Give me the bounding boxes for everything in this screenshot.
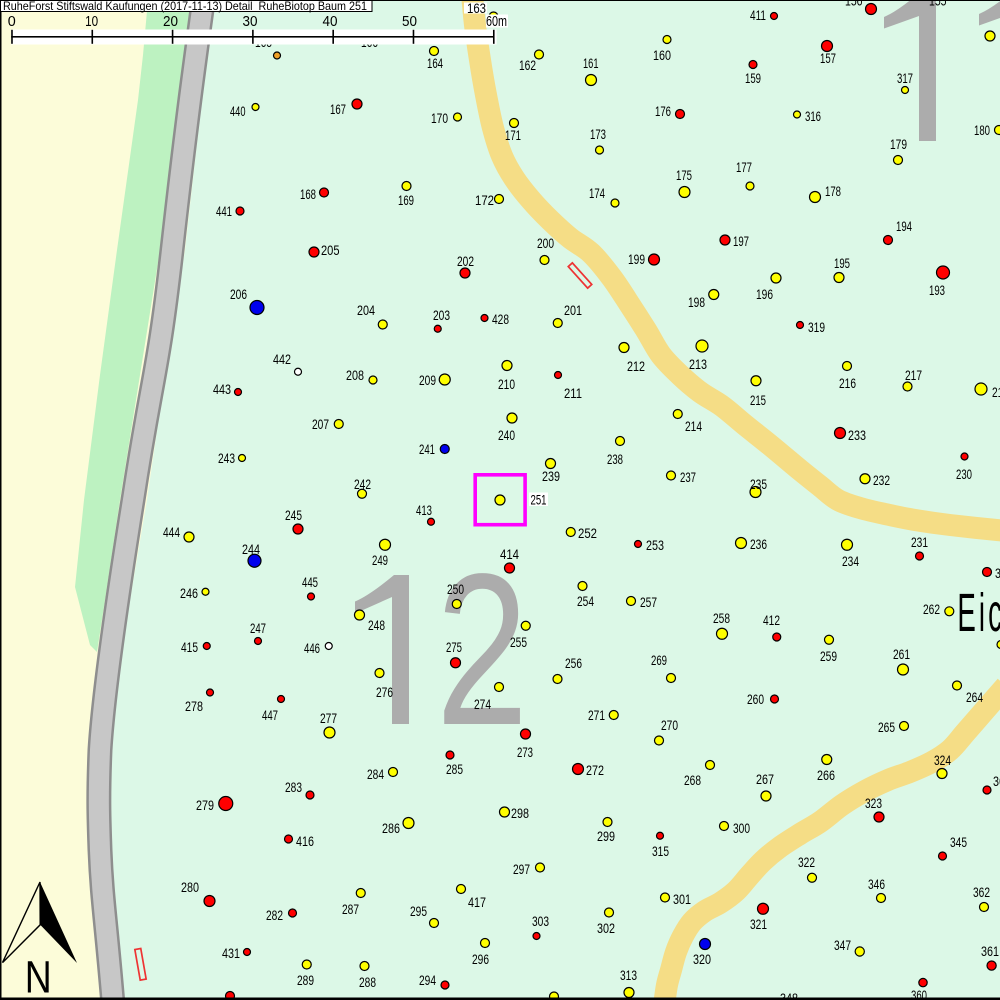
svg-text:264: 264 — [966, 689, 983, 705]
svg-text:268: 268 — [684, 772, 701, 788]
svg-text:168: 168 — [300, 186, 316, 202]
svg-text:259: 259 — [820, 648, 837, 664]
svg-text:172: 172 — [475, 192, 494, 208]
svg-text:447: 447 — [262, 707, 278, 723]
svg-text:237: 237 — [680, 469, 696, 485]
svg-text:250: 250 — [447, 581, 464, 597]
svg-text:208: 208 — [346, 367, 364, 383]
svg-text:266: 266 — [817, 767, 835, 783]
svg-text:169: 169 — [398, 192, 414, 208]
svg-text:315: 315 — [652, 843, 669, 859]
svg-text:162: 162 — [519, 57, 536, 73]
svg-text:415: 415 — [181, 639, 198, 655]
svg-text:159: 159 — [745, 70, 761, 86]
svg-text:416: 416 — [296, 833, 314, 849]
svg-text:274: 274 — [474, 696, 491, 712]
svg-text:269: 269 — [651, 652, 667, 668]
svg-text:442: 442 — [273, 351, 291, 367]
svg-text:272: 272 — [586, 762, 604, 778]
svg-text:216: 216 — [839, 375, 856, 391]
svg-text:258: 258 — [713, 610, 730, 626]
svg-text:277: 277 — [320, 710, 337, 726]
svg-text:257: 257 — [640, 594, 657, 610]
svg-text:285: 285 — [446, 761, 463, 777]
svg-text:413: 413 — [416, 502, 432, 518]
svg-text:175: 175 — [676, 167, 692, 183]
svg-text:240: 240 — [498, 427, 515, 443]
svg-text:261: 261 — [893, 646, 910, 662]
svg-text:322: 322 — [798, 854, 815, 870]
svg-text:301: 301 — [673, 891, 691, 907]
svg-text:200: 200 — [537, 235, 554, 251]
svg-text:323: 323 — [865, 795, 882, 811]
svg-text:265: 265 — [878, 719, 895, 735]
svg-text:251: 251 — [531, 492, 547, 508]
svg-text:345: 345 — [950, 834, 967, 850]
svg-text:286: 286 — [382, 820, 400, 836]
svg-text:255: 255 — [510, 634, 527, 650]
svg-text:233: 233 — [848, 427, 866, 443]
svg-text:234: 234 — [842, 553, 859, 569]
svg-text:170: 170 — [431, 110, 448, 126]
svg-text:253: 253 — [646, 537, 664, 553]
svg-text:156: 156 — [845, 0, 863, 9]
svg-text:178: 178 — [825, 183, 841, 199]
svg-text:163: 163 — [467, 0, 486, 16]
svg-text:260: 260 — [747, 691, 764, 707]
svg-text:298: 298 — [511, 805, 529, 821]
svg-text:50: 50 — [402, 14, 417, 30]
svg-text:414: 414 — [500, 546, 519, 562]
svg-text:193: 193 — [929, 282, 945, 298]
svg-text:198: 198 — [688, 294, 705, 310]
svg-text:201: 201 — [564, 302, 582, 318]
svg-text:236: 236 — [750, 536, 767, 552]
svg-text:199: 199 — [628, 251, 645, 267]
svg-text:444: 444 — [163, 524, 180, 540]
svg-text:446: 446 — [304, 640, 320, 656]
svg-text:239: 239 — [542, 468, 560, 484]
svg-text:246: 246 — [180, 585, 198, 601]
svg-text:RuheForst Stiftswald Kaufungen: RuheForst Stiftswald Kaufungen (2017-11-… — [3, 0, 367, 13]
svg-text:217: 217 — [905, 367, 922, 383]
svg-text:278: 278 — [185, 698, 203, 714]
svg-text:284: 284 — [367, 766, 384, 782]
svg-text:171: 171 — [505, 127, 521, 143]
svg-text:271: 271 — [588, 707, 605, 723]
svg-text:157: 157 — [820, 50, 836, 66]
svg-text:276: 276 — [376, 684, 393, 700]
svg-text:196: 196 — [756, 286, 773, 302]
svg-text:319: 319 — [808, 319, 825, 335]
svg-text:262: 262 — [923, 601, 940, 617]
svg-text:211: 211 — [564, 385, 582, 401]
svg-text:296: 296 — [472, 951, 489, 967]
svg-text:232: 232 — [873, 472, 890, 488]
svg-text:173: 173 — [590, 126, 606, 142]
svg-text:248: 248 — [368, 617, 385, 633]
svg-text:443: 443 — [213, 381, 231, 397]
svg-text:174: 174 — [589, 185, 605, 201]
svg-text:267: 267 — [756, 771, 774, 787]
svg-text:179: 179 — [890, 136, 907, 152]
svg-text:N: N — [25, 952, 52, 1000]
svg-text:245: 245 — [285, 507, 302, 523]
svg-text:283: 283 — [285, 779, 302, 795]
svg-text:230: 230 — [956, 466, 972, 482]
svg-text:205: 205 — [321, 242, 340, 258]
svg-text:417: 417 — [468, 894, 486, 910]
svg-text:209: 209 — [419, 372, 436, 388]
svg-text:320: 320 — [693, 951, 711, 967]
svg-text:361: 361 — [981, 943, 999, 959]
svg-text:20: 20 — [163, 14, 178, 30]
svg-text:445: 445 — [302, 574, 318, 590]
svg-text:347: 347 — [834, 937, 851, 953]
svg-text:214: 214 — [685, 418, 702, 434]
svg-text:Eich: Eich — [957, 583, 1000, 643]
svg-text:218: 218 — [992, 384, 1000, 400]
svg-text:36: 36 — [993, 773, 1000, 789]
svg-text:256: 256 — [565, 655, 582, 671]
svg-text:411: 411 — [750, 7, 766, 23]
svg-text:213: 213 — [689, 356, 707, 372]
svg-text:3: 3 — [995, 565, 1000, 581]
svg-text:60m: 60m — [486, 14, 507, 30]
svg-text:197: 197 — [733, 233, 749, 249]
svg-text:362: 362 — [973, 884, 990, 900]
svg-text:249: 249 — [372, 552, 388, 568]
svg-text:280: 280 — [181, 879, 199, 895]
svg-text:210: 210 — [498, 376, 515, 392]
svg-text:288: 288 — [359, 974, 376, 990]
svg-text:279: 279 — [196, 797, 214, 813]
svg-text:194: 194 — [896, 218, 912, 234]
svg-text:155: 155 — [929, 0, 947, 9]
svg-text:254: 254 — [577, 593, 594, 609]
svg-text:295: 295 — [410, 903, 427, 919]
svg-text:160: 160 — [653, 47, 671, 63]
svg-text:238: 238 — [607, 451, 623, 467]
svg-text:300: 300 — [733, 820, 750, 836]
svg-text:215: 215 — [750, 392, 766, 408]
svg-text:195: 195 — [834, 255, 850, 271]
svg-text:30: 30 — [243, 14, 258, 30]
svg-text:207: 207 — [312, 416, 329, 432]
svg-text:167: 167 — [330, 101, 346, 117]
svg-text:316: 316 — [805, 108, 821, 124]
svg-text:203: 203 — [433, 307, 450, 323]
svg-text:164: 164 — [427, 55, 443, 71]
svg-text:282: 282 — [266, 907, 283, 923]
svg-text:247: 247 — [250, 620, 266, 636]
svg-text:10: 10 — [85, 14, 98, 30]
svg-text:212: 212 — [627, 358, 645, 374]
svg-text:273: 273 — [517, 744, 533, 760]
svg-text:321: 321 — [750, 916, 767, 932]
svg-text:270: 270 — [661, 717, 678, 733]
svg-text:303: 303 — [532, 913, 549, 929]
svg-text:297: 297 — [513, 861, 530, 877]
svg-text:275: 275 — [446, 639, 462, 655]
svg-text:244: 244 — [242, 541, 260, 557]
svg-text:40: 40 — [323, 14, 338, 30]
svg-text:412: 412 — [763, 612, 780, 628]
svg-text:204: 204 — [357, 302, 375, 318]
svg-text:289: 289 — [297, 972, 314, 988]
svg-text:0: 0 — [8, 14, 16, 30]
svg-text:177: 177 — [736, 159, 752, 175]
svg-text:206: 206 — [230, 286, 247, 302]
svg-text:243: 243 — [218, 450, 235, 466]
svg-text:180: 180 — [974, 122, 990, 138]
svg-text:161: 161 — [583, 55, 599, 71]
svg-text:299: 299 — [597, 828, 615, 844]
svg-text:317: 317 — [897, 70, 913, 86]
svg-text:287: 287 — [342, 901, 359, 917]
svg-text:441: 441 — [216, 203, 232, 219]
svg-text:302: 302 — [597, 920, 615, 936]
svg-text:313: 313 — [620, 967, 637, 983]
svg-text:202: 202 — [457, 253, 474, 269]
svg-text:235: 235 — [750, 476, 767, 492]
svg-text:431: 431 — [222, 945, 240, 961]
svg-text:324: 324 — [934, 752, 951, 768]
svg-text:241: 241 — [419, 441, 435, 457]
svg-text:242: 242 — [354, 476, 371, 492]
svg-text:176: 176 — [655, 103, 671, 119]
svg-text:252: 252 — [578, 525, 597, 541]
svg-text:440: 440 — [230, 103, 246, 119]
svg-text:346: 346 — [868, 876, 885, 892]
svg-text:428: 428 — [492, 311, 509, 327]
svg-text:294: 294 — [419, 972, 436, 988]
svg-text:231: 231 — [911, 534, 928, 550]
